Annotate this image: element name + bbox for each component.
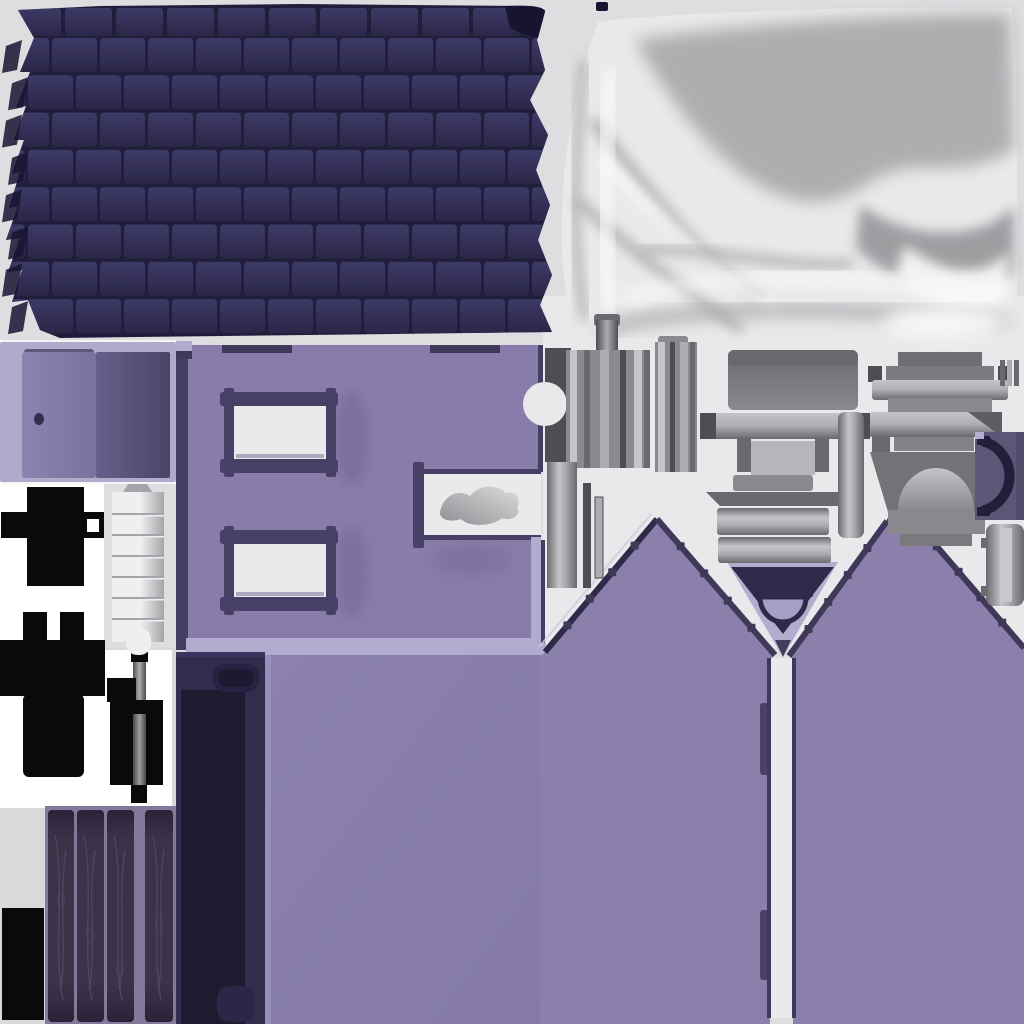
door-slot-gap xyxy=(767,658,796,1018)
window-frame-lower xyxy=(220,526,338,615)
door-knob xyxy=(34,413,44,425)
beam-foot xyxy=(217,986,254,1022)
vent-arch xyxy=(760,597,806,622)
arc-handle-piece xyxy=(975,432,1024,520)
door-leaf-light xyxy=(22,352,96,478)
chimney-smoke-notch xyxy=(413,462,541,548)
roof-shingle-texture xyxy=(0,2,608,338)
dark-beam-island xyxy=(176,652,265,1024)
pin-mark xyxy=(596,2,608,11)
wall-with-windows-island xyxy=(176,341,545,655)
plank-door-island xyxy=(45,806,176,1024)
bellows-stack xyxy=(112,484,164,655)
door-leaf-dark xyxy=(96,352,170,478)
door-panel-island xyxy=(0,342,176,482)
window-frame-upper xyxy=(220,388,338,477)
window-pane xyxy=(234,544,326,597)
metal-flange-cylinder-b xyxy=(655,336,697,472)
satin-cloth-texture xyxy=(562,7,1019,344)
wall-left-edge xyxy=(176,345,188,650)
black-cutout-square xyxy=(2,908,44,1020)
floor-panel-island xyxy=(265,643,546,1024)
metal-sleeve-piece xyxy=(981,524,1024,606)
texture-atlas xyxy=(0,0,1024,1024)
window-pane xyxy=(234,406,326,459)
